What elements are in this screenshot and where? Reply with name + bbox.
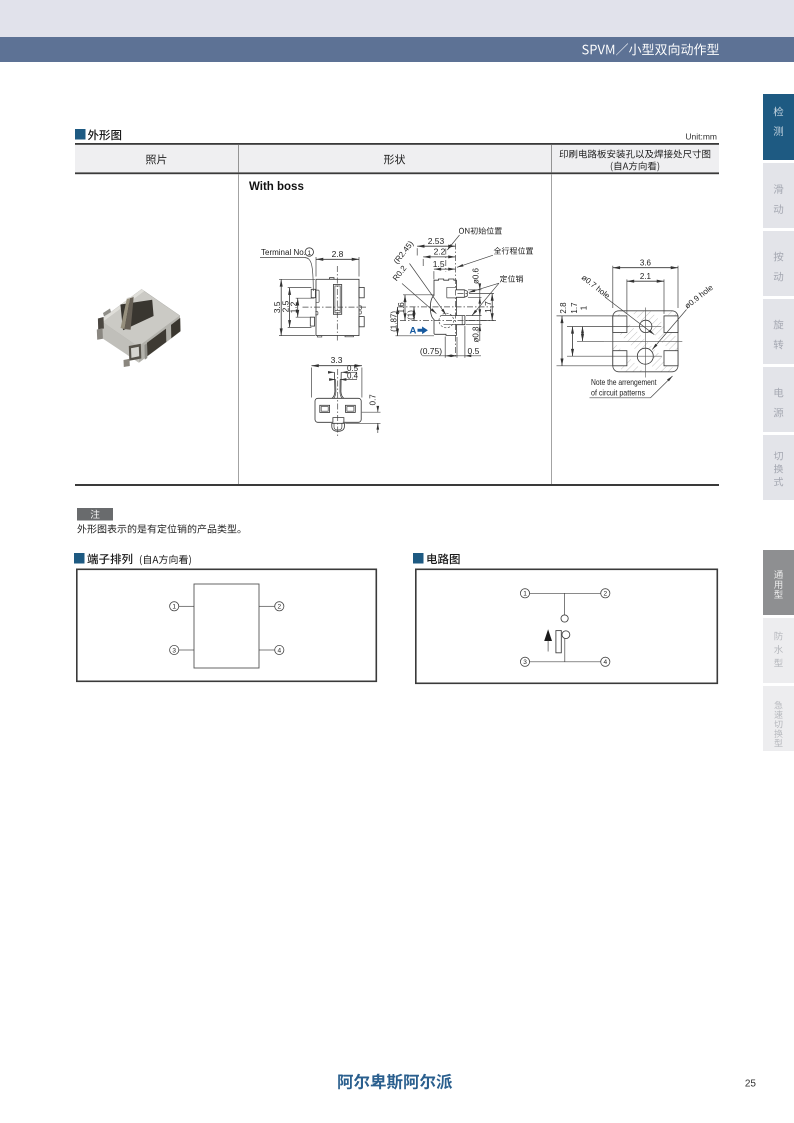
svg-text:1.7: 1.7	[570, 302, 579, 314]
svg-text:(R2.45): (R2.45)	[392, 239, 416, 266]
svg-text:(1): (1)	[406, 310, 415, 320]
svg-text:2.53: 2.53	[428, 236, 445, 246]
svg-text:4: 4	[603, 659, 607, 666]
svg-text:R0.2: R0.2	[391, 263, 409, 282]
svg-text:Unit:mm: Unit:mm	[685, 132, 717, 142]
svg-text:(0.75): (0.75)	[420, 346, 442, 356]
svg-text:0.4: 0.4	[347, 371, 359, 380]
svg-text:With boss: With boss	[249, 181, 304, 193]
svg-text:1: 1	[580, 305, 589, 310]
svg-text:ø0.7 hole: ø0.7 hole	[580, 273, 612, 301]
svg-text:1.7: 1.7	[483, 301, 493, 313]
svg-text:2.8: 2.8	[559, 302, 568, 314]
svg-text:Note the arrengement: Note the arrengement	[591, 377, 657, 387]
svg-text:ø0.8: ø0.8	[471, 326, 480, 343]
svg-text:2.8: 2.8	[332, 249, 344, 259]
svg-text:0.5: 0.5	[468, 346, 480, 356]
svg-text:1: 1	[307, 250, 311, 257]
svg-text:25: 25	[745, 1079, 757, 1090]
svg-text:of circuit patterns: of circuit patterns	[591, 387, 645, 397]
svg-text:2: 2	[603, 591, 607, 598]
svg-text:Terminal No.: Terminal No.	[261, 248, 306, 257]
svg-text:A: A	[410, 326, 417, 337]
svg-text:1.2: 1.2	[289, 301, 299, 313]
svg-text:ø0.9 hole: ø0.9 hole	[683, 283, 715, 311]
svg-text:3.6: 3.6	[640, 258, 652, 267]
svg-text:2.2: 2.2	[434, 247, 446, 257]
svg-text:2.1: 2.1	[640, 272, 652, 281]
svg-text:4: 4	[277, 647, 281, 654]
svg-text:1: 1	[523, 591, 527, 598]
svg-text:3.3: 3.3	[331, 355, 343, 365]
svg-text:1: 1	[172, 604, 176, 611]
svg-text:3: 3	[523, 659, 527, 666]
svg-text:0.7: 0.7	[368, 394, 377, 406]
svg-text:ø0.6: ø0.6	[471, 267, 480, 284]
svg-text:2: 2	[277, 604, 281, 611]
svg-text:(1.87): (1.87)	[389, 311, 398, 332]
svg-text:1.5: 1.5	[433, 259, 445, 269]
svg-text:3: 3	[172, 647, 176, 654]
